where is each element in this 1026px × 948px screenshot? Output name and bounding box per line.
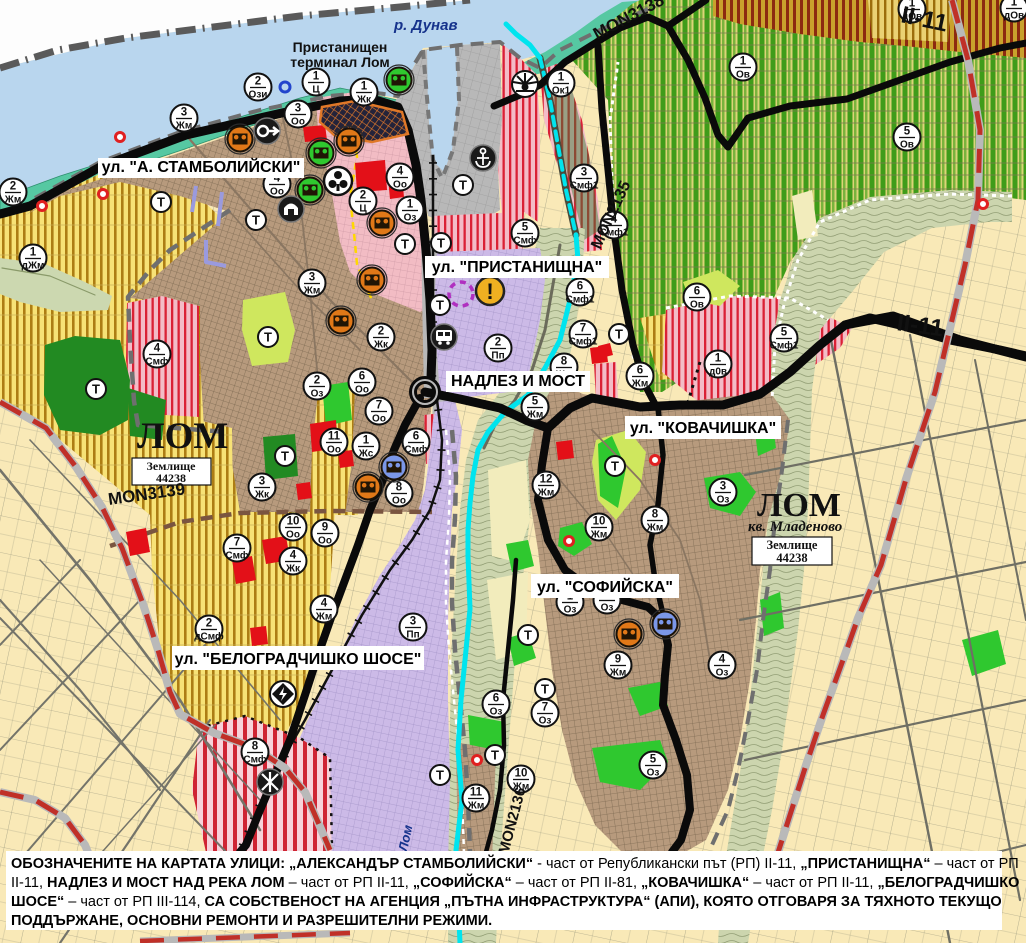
svg-text:6: 6	[577, 281, 583, 293]
svg-text:Смф: Смф	[145, 356, 168, 368]
svg-text:Жк: Жк	[373, 340, 389, 351]
svg-text:7: 7	[580, 323, 586, 335]
svg-text:Смф: Смф	[243, 754, 266, 766]
svg-text:Смф: Смф	[513, 235, 536, 247]
svg-text:Ц: Ц	[312, 85, 320, 96]
svg-text:Ози: Ози	[249, 90, 268, 101]
svg-text:Жк: Жк	[254, 490, 270, 501]
svg-text:Ц: Ц	[359, 204, 367, 215]
svg-text:1: 1	[1011, 0, 1018, 9]
svg-text:НАДЛЕЗ И МОСТ: НАДЛЕЗ И МОСТ	[451, 373, 585, 390]
svg-text:Жм: Жм	[537, 488, 554, 499]
svg-text:7: 7	[542, 702, 548, 714]
svg-text:Т: Т	[491, 748, 499, 763]
svg-text:2: 2	[314, 375, 320, 387]
svg-text:4: 4	[321, 598, 328, 610]
svg-text:11: 11	[328, 431, 341, 443]
svg-text:Жм: Жм	[646, 523, 663, 534]
svg-text:3: 3	[181, 107, 187, 119]
svg-text:Жм: Жм	[315, 612, 332, 623]
svg-text:2: 2	[378, 326, 384, 338]
svg-text:Пристанищен: Пристанищен	[293, 39, 388, 55]
svg-text:Пп: Пп	[491, 351, 504, 362]
svg-text:Т: Т	[459, 178, 467, 193]
svg-text:2: 2	[495, 337, 501, 349]
svg-text:2: 2	[360, 190, 366, 202]
svg-text:Смф1: Смф1	[770, 340, 799, 352]
svg-text:Жм: Жм	[590, 530, 607, 541]
svg-text:кв. Младеново: кв. Младеново	[748, 519, 842, 535]
svg-text:5: 5	[904, 126, 911, 138]
svg-text:Жм: Жм	[467, 801, 484, 812]
svg-text:12: 12	[540, 474, 553, 486]
svg-text:Оз: Оз	[564, 605, 577, 616]
svg-text:4: 4	[154, 343, 161, 355]
svg-text:Т: Т	[92, 382, 100, 397]
svg-text:2: 2	[255, 76, 261, 88]
svg-text:Землище: Землище	[767, 538, 818, 552]
svg-text:ЛОМ: ЛОМ	[137, 416, 228, 457]
svg-text:1: 1	[740, 56, 747, 68]
svg-text:Жм: Жм	[526, 410, 543, 421]
svg-text:11: 11	[470, 787, 483, 799]
svg-text:ПОДДЪРЖАНЕ, ОСНОВНИ РЕМОНТИ И: ПОДДЪРЖАНЕ, ОСНОВНИ РЕМОНТИ И РАЗРЕШИТЕЛ…	[11, 913, 492, 929]
svg-text:Ок1: Ок1	[552, 86, 571, 97]
svg-text:Пп: Пп	[406, 630, 419, 641]
svg-text:10: 10	[593, 516, 606, 528]
svg-text:Т: Т	[157, 195, 165, 210]
svg-text:8: 8	[652, 509, 659, 521]
svg-text:6: 6	[359, 371, 365, 383]
svg-text:Т: Т	[281, 449, 289, 464]
svg-text:ул. "КОВАЧИШКА": ул. "КОВАЧИШКА"	[630, 420, 776, 437]
svg-text:1: 1	[363, 435, 370, 447]
svg-text:Жм: Жм	[175, 121, 192, 132]
svg-text:Оо: Оо	[393, 180, 407, 191]
svg-text:Т: Т	[541, 682, 549, 697]
svg-text:Жм: Жм	[631, 379, 648, 390]
svg-text:Ов: Ов	[736, 70, 750, 81]
svg-text:6: 6	[493, 693, 499, 705]
svg-text:8: 8	[252, 741, 259, 753]
svg-text:Жм: Жм	[609, 668, 626, 679]
svg-text:5: 5	[781, 327, 788, 339]
svg-text:Смф1: Смф1	[566, 294, 595, 306]
svg-text:Т: Т	[437, 236, 445, 251]
svg-text:44238: 44238	[776, 551, 807, 565]
svg-text:7: 7	[376, 400, 382, 412]
svg-text:3: 3	[581, 167, 587, 179]
svg-text:Оз: Оз	[647, 768, 660, 779]
svg-text:Т: Т	[436, 298, 444, 313]
svg-text:Смф1: Смф1	[569, 336, 598, 348]
svg-text:6: 6	[637, 365, 643, 377]
svg-text:Смф1: Смф1	[570, 180, 599, 192]
svg-text:10: 10	[287, 516, 300, 528]
svg-text:Жм: Жм	[4, 195, 21, 206]
svg-text:Т: Т	[436, 768, 444, 783]
svg-text:3: 3	[720, 481, 726, 493]
svg-text:Жс: Жс	[358, 449, 374, 460]
svg-text:1: 1	[558, 72, 565, 84]
svg-text:Оо: Оо	[372, 414, 386, 425]
svg-text:3: 3	[259, 476, 265, 488]
svg-text:дЖм: дЖм	[22, 261, 45, 272]
svg-text:Оо: Оо	[318, 536, 332, 547]
svg-text:р. Дунав: р. Дунав	[393, 17, 458, 34]
svg-text:Смф: Смф	[225, 550, 248, 562]
svg-text:Оз: Оз	[311, 389, 324, 400]
svg-text:ул. "ПРИСТАНИЩНА": ул. "ПРИСТАНИЩНА"	[432, 259, 603, 276]
svg-text:Оо: Оо	[286, 530, 300, 541]
svg-text:Оз: Оз	[717, 495, 730, 506]
svg-text:дОв: дОв	[1004, 11, 1024, 22]
svg-text:Т: Т	[615, 327, 623, 342]
svg-text:5: 5	[532, 396, 539, 408]
svg-text:Оо: Оо	[327, 445, 341, 456]
svg-text:ШОСЕ“ – част от РП III-114, СА: ШОСЕ“ – част от РП III-114, СА СОБСТВЕНО…	[11, 894, 1002, 910]
svg-text:Т: Т	[252, 213, 260, 228]
svg-text:ОБОЗНАЧЕНИТЕ НА КАРТАТА УЛИЦИ:: ОБОЗНАЧЕНИТЕ НА КАРТАТА УЛИЦИ: „АЛЕКСАНД…	[11, 854, 1019, 872]
svg-text:6: 6	[694, 286, 700, 298]
svg-text:дСмф: дСмф	[194, 631, 224, 643]
svg-text:Оо: Оо	[291, 117, 305, 128]
svg-text:Т: Т	[611, 459, 619, 474]
svg-text:5: 5	[650, 754, 657, 766]
svg-text:9: 9	[615, 654, 621, 666]
svg-text:Оз: Оз	[601, 603, 614, 614]
svg-text:5: 5	[522, 222, 529, 234]
svg-text:ул. "БЕЛОГРАДЧИШКО ШОСЕ": ул. "БЕЛОГРАДЧИШКО ШОСЕ"	[175, 651, 422, 668]
svg-text:д0в: д0в	[709, 367, 727, 378]
svg-text:1: 1	[30, 247, 37, 259]
svg-text:2: 2	[206, 618, 212, 630]
svg-text:9: 9	[322, 522, 328, 534]
svg-text:Оз: Оз	[490, 707, 503, 718]
svg-text:3: 3	[410, 616, 416, 628]
svg-text:8: 8	[561, 356, 568, 368]
svg-text:Оо: Оо	[270, 187, 284, 198]
svg-text:II-11, НАДЛЕЗ И МОСТ НАД РЕКА: II-11, НАДЛЕЗ И МОСТ НАД РЕКА ЛОМ – част…	[11, 873, 1019, 891]
svg-text:Жк: Жк	[356, 95, 372, 106]
svg-text:Т: Т	[401, 237, 409, 252]
svg-text:Жм: Жм	[303, 286, 320, 297]
svg-text:Ов: Ов	[690, 300, 704, 311]
svg-text:8: 8	[396, 482, 403, 494]
svg-text:1: 1	[313, 71, 320, 83]
svg-text:Т: Т	[264, 330, 272, 345]
svg-text:7: 7	[234, 537, 240, 549]
svg-text:4: 4	[397, 166, 404, 178]
svg-text:10: 10	[515, 768, 528, 780]
svg-text:4: 4	[290, 550, 297, 562]
svg-text:1: 1	[715, 353, 722, 365]
svg-text:3: 3	[309, 272, 315, 284]
svg-text:2: 2	[10, 181, 16, 193]
svg-text:!: !	[486, 279, 493, 304]
svg-text:Смф: Смф	[404, 444, 427, 456]
svg-text:Оо: Оо	[392, 496, 406, 507]
svg-text:6: 6	[413, 431, 419, 443]
svg-text:Оз: Оз	[539, 716, 552, 727]
svg-text:1: 1	[407, 199, 414, 211]
svg-text:Оо: Оо	[355, 385, 369, 396]
svg-text:Т: Т	[524, 628, 532, 643]
svg-text:ул. "А. СТАМБОЛИЙСКИ": ул. "А. СТАМБОЛИЙСКИ"	[102, 157, 301, 176]
svg-text:Оз: Оз	[716, 668, 729, 679]
svg-text:3: 3	[295, 103, 301, 115]
svg-text:ул. "СОФИЙСКА": ул. "СОФИЙСКА"	[537, 577, 673, 596]
svg-text:Оз: Оз	[404, 213, 417, 224]
svg-text:1: 1	[361, 81, 368, 93]
svg-text:Ов: Ов	[900, 140, 914, 151]
svg-text:терминал Лом: терминал Лом	[290, 54, 390, 70]
svg-text:4: 4	[719, 654, 726, 666]
svg-text:Жк: Жк	[285, 564, 301, 575]
